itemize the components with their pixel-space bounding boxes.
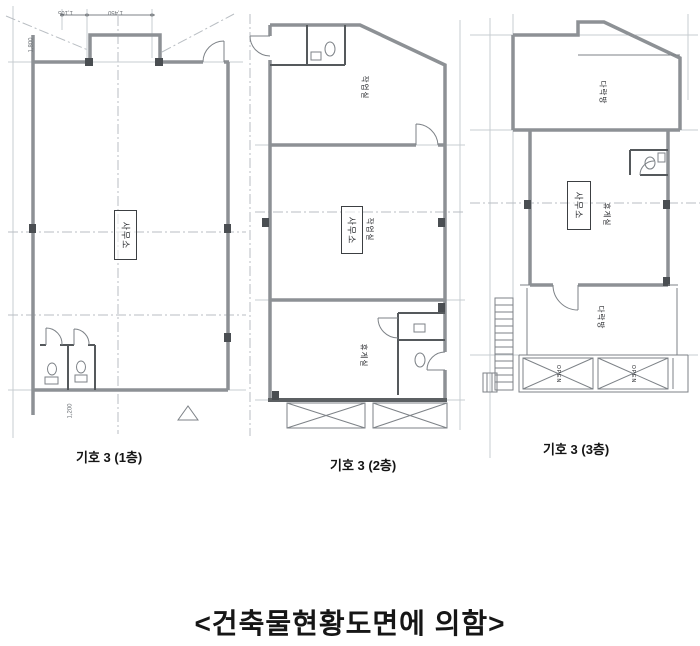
plan1-dim-top-left: 1,105 bbox=[58, 9, 73, 15]
plan1-dim-bottom: 1,200 bbox=[68, 403, 74, 418]
plan2-room-label-bottom: 휴게실 bbox=[356, 336, 372, 374]
plan3-open-label-2: OPEN bbox=[627, 363, 639, 385]
plan3-open-label-2-text: OPEN bbox=[630, 365, 636, 383]
footer-caption: <건축물현황도면에 의함> bbox=[0, 602, 700, 642]
plan3-room-label-office: 사무소 bbox=[567, 181, 591, 230]
plan2-room-label-bottom-text: 휴게실 bbox=[359, 343, 370, 367]
plan3-room-label-office-note: 휴게실 bbox=[600, 194, 614, 234]
plan-3-linework bbox=[470, 14, 700, 458]
plan2-caption: 기호 3 (2층) bbox=[330, 455, 396, 474]
plan1-room-label-office: 사무소 bbox=[114, 210, 137, 260]
plan2-room-label-office: 사무소 bbox=[341, 206, 363, 254]
plan1-room-label-office-text: 사무소 bbox=[119, 221, 132, 249]
plan2-room-label-top: 작업실 bbox=[356, 66, 374, 108]
plan3-open-label-1-text: OPEN bbox=[555, 365, 561, 383]
plan2-room-label-office-note-text: 작업실 bbox=[365, 217, 376, 241]
plan3-room-label-bottom-text: 다락방 bbox=[595, 305, 606, 329]
plan2-room-label-office-note: 작업실 bbox=[363, 210, 377, 248]
plan3-caption: 기호 3 (3층) bbox=[543, 439, 609, 458]
plan2-room-label-top-text: 작업실 bbox=[360, 75, 371, 99]
plan3-room-label-office-note-text: 휴게실 bbox=[602, 202, 613, 226]
plan3-room-label-top-text: 다락방 bbox=[598, 80, 609, 104]
plan1-dim-top-right: 1,450 bbox=[108, 9, 123, 15]
drawing-sheet: 1,105 1,450 1,800 1,200 사무소 기호 3 (1층) 작업… bbox=[0, 0, 700, 646]
plan2-room-label-office-text: 사무소 bbox=[346, 216, 359, 244]
plan1-dim-left: 1,800 bbox=[29, 37, 35, 52]
plan3-room-label-office-text: 사무소 bbox=[573, 192, 586, 220]
plan3-open-label-1: OPEN bbox=[552, 363, 564, 385]
plan3-room-label-top: 다락방 bbox=[595, 72, 611, 112]
plan3-room-label-bottom: 다락방 bbox=[593, 300, 608, 334]
plan1-caption: 기호 3 (1층) bbox=[76, 447, 142, 466]
